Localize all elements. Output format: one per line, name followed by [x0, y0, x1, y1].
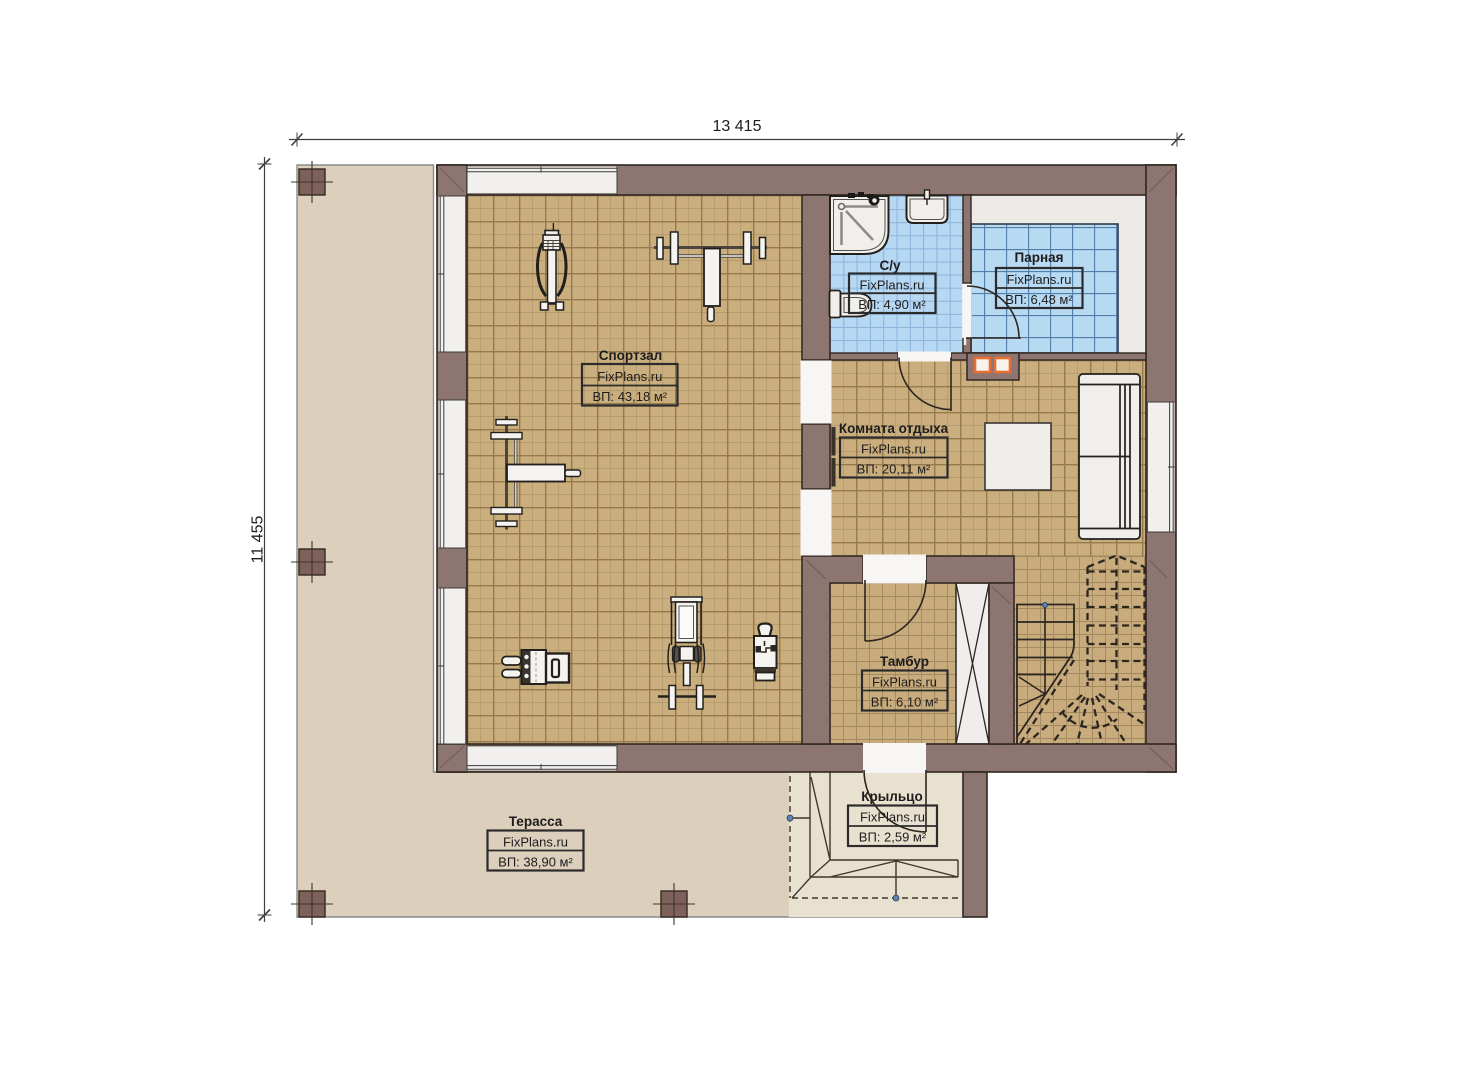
- svg-text:FixPlans.ru: FixPlans.ru: [861, 442, 926, 457]
- svg-text:FixPlans.ru: FixPlans.ru: [503, 835, 568, 850]
- svg-text:Терасса: Терасса: [509, 814, 563, 829]
- svg-text:FixPlans.ru: FixPlans.ru: [872, 675, 937, 690]
- svg-text:FixPlans.ru: FixPlans.ru: [860, 810, 925, 825]
- svg-text:ВП: 20,11 м²: ВП: 20,11 м²: [857, 462, 931, 477]
- svg-text:FixPlans.ru: FixPlans.ru: [1006, 272, 1071, 287]
- svg-text:Спортзал: Спортзал: [599, 348, 662, 363]
- svg-text:Комната отдыха: Комната отдыха: [839, 421, 949, 436]
- svg-text:ВП: 2,59 м²: ВП: 2,59 м²: [859, 830, 927, 845]
- svg-text:FixPlans.ru: FixPlans.ru: [597, 369, 662, 384]
- svg-text:Тамбур: Тамбур: [880, 654, 929, 669]
- svg-text:13 415: 13 415: [713, 118, 762, 135]
- svg-text:ВП: 6,10 м²: ВП: 6,10 м²: [871, 695, 939, 710]
- svg-text:11 455: 11 455: [250, 516, 267, 564]
- svg-text:FixPlans.ru: FixPlans.ru: [859, 278, 924, 293]
- svg-text:ВП: 6,48 м²: ВП: 6,48 м²: [1005, 292, 1073, 307]
- svg-text:Крыльцо: Крыльцо: [861, 789, 922, 804]
- svg-text:ВП: 38,90 м²: ВП: 38,90 м²: [498, 855, 573, 870]
- svg-text:Парная: Парная: [1015, 250, 1064, 265]
- svg-text:ВП: 4,90 м²: ВП: 4,90 м²: [858, 297, 926, 312]
- svg-text:С/у: С/у: [879, 258, 901, 273]
- svg-text:ВП: 43,18 м²: ВП: 43,18 м²: [592, 389, 667, 404]
